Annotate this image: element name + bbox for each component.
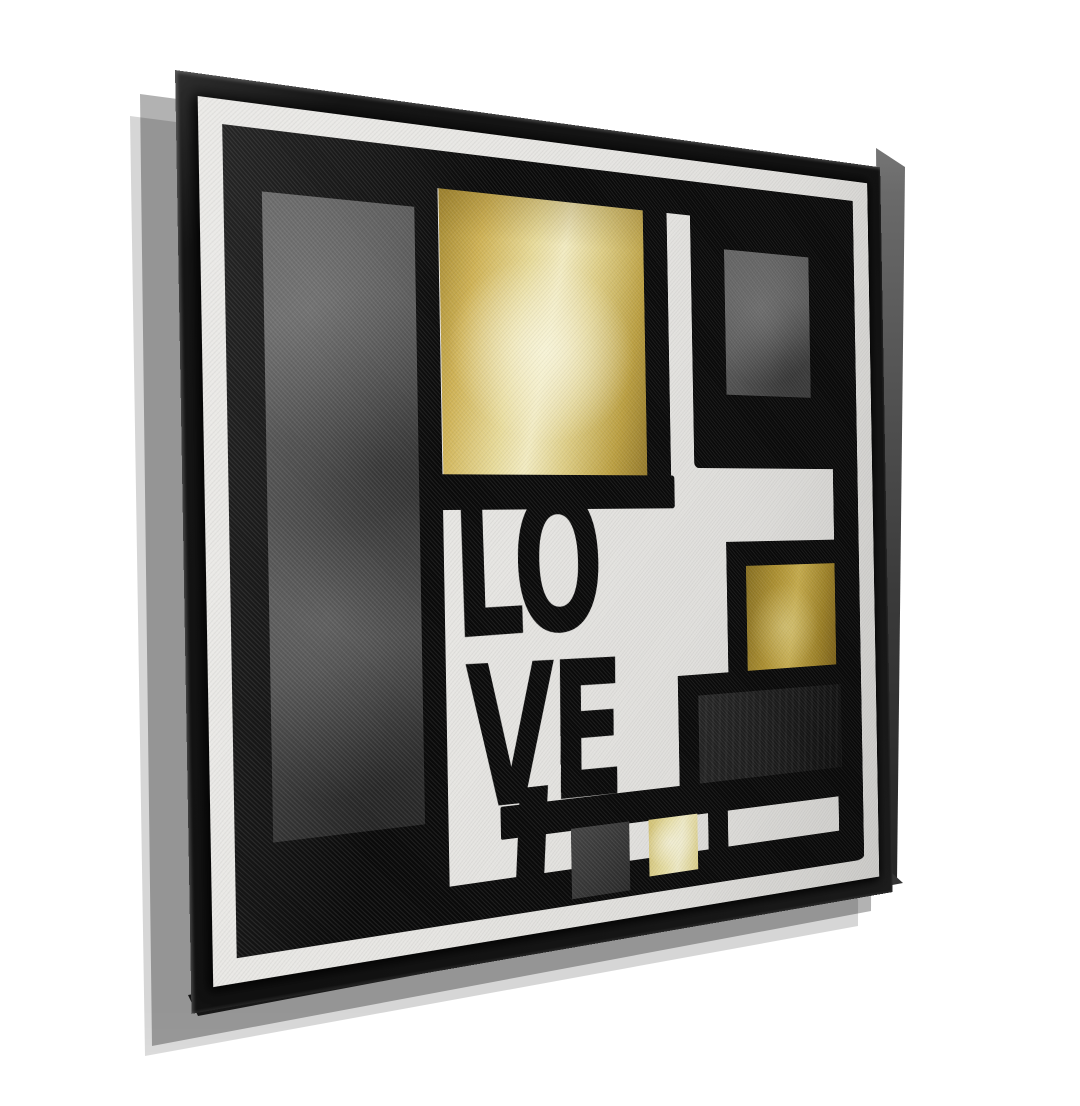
product-photo: LO VE	[0, 0, 1080, 1080]
floating-frame: LO VE	[175, 70, 893, 1014]
lighting-overlay	[198, 96, 880, 987]
canvas: LO VE	[198, 96, 880, 987]
